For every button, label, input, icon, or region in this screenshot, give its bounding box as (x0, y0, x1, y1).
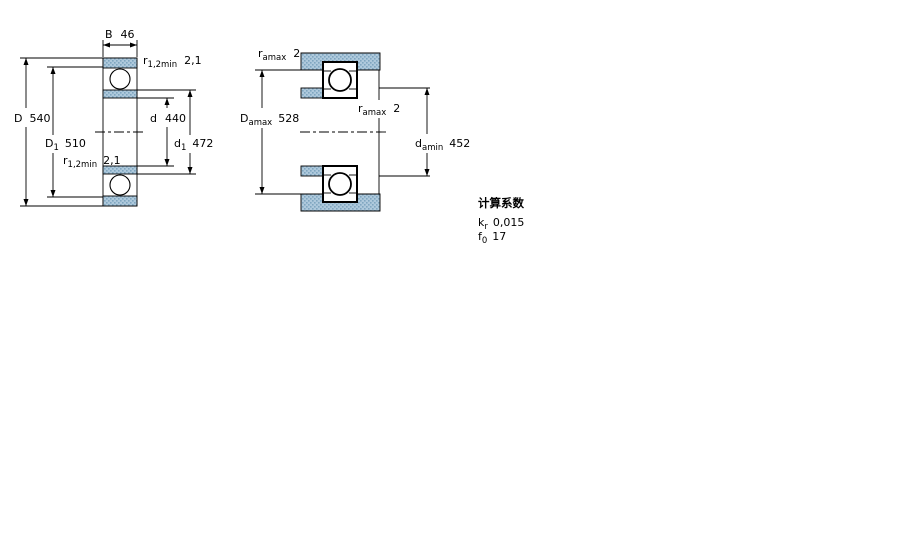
dim-label-B: B46 (105, 28, 135, 41)
inner-ring-bottom-band (103, 166, 137, 174)
shaft-shoulder-bottom (301, 166, 323, 176)
canvas-background (0, 0, 900, 560)
shaft-shoulder-top (301, 88, 323, 98)
bearing-drawing-canvas: B46 D540 D1510 (0, 0, 900, 560)
bearing-drawing-page: B46 D540 D1510 (0, 0, 900, 560)
bearing-section-top (323, 62, 357, 98)
dim-label-D: D540 (14, 112, 50, 125)
ball-top (110, 69, 130, 89)
ball (329, 173, 351, 195)
calculation-factors-title: 计算系数 (478, 196, 524, 210)
outer-ring-top-band (103, 58, 137, 68)
inner-ring-top-band (103, 90, 137, 98)
ball-bottom (110, 175, 130, 195)
outer-ring-bottom-band (103, 196, 137, 206)
ball (329, 69, 351, 91)
dim-label-d: d440 (150, 112, 186, 125)
bearing-section-bottom (323, 166, 357, 202)
